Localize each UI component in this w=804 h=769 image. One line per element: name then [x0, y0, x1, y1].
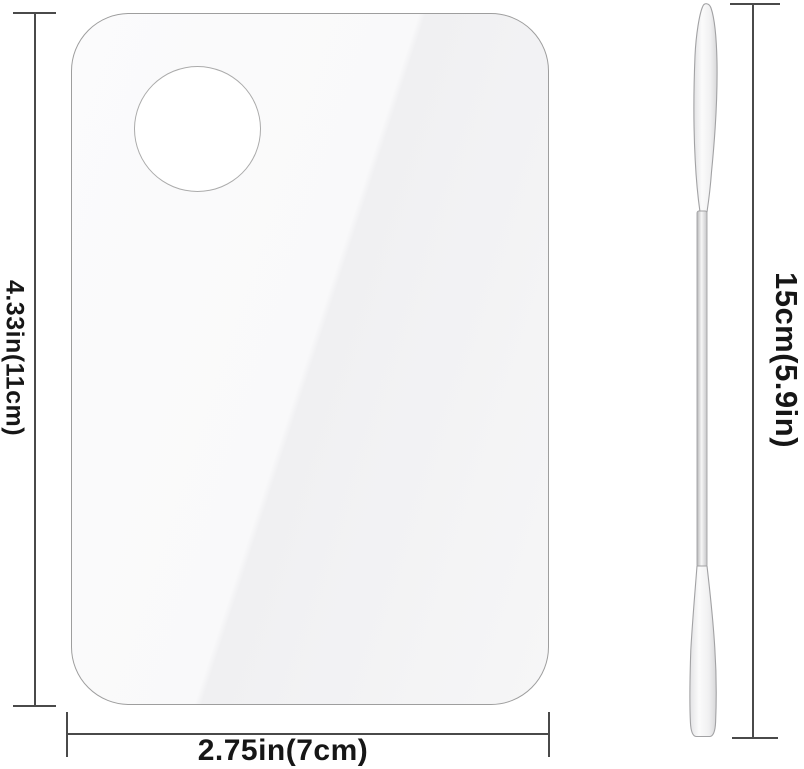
spatula-bottom-blade	[690, 566, 716, 737]
palette-height-label: 4.33in(11cm)	[0, 280, 29, 436]
width-dimension-tick-right	[548, 712, 550, 757]
height-dimension-line	[34, 13, 36, 707]
height-dimension-cap-top	[13, 12, 56, 14]
length-dimension-cap-bottom	[732, 737, 778, 739]
palette-width-label: 2.75in(7cm)	[198, 734, 369, 768]
width-dimension-tick-left	[66, 712, 68, 757]
mixing-spatula-icon	[680, 0, 730, 745]
length-dimension-line	[752, 4, 754, 739]
product-dimension-image: 4.33in(11cm) 2.75in(7cm) 15cm(5.9in)	[0, 0, 804, 769]
makeup-palette	[71, 13, 549, 705]
thumb-hole	[134, 66, 261, 192]
spatula-handle-rod	[697, 211, 707, 567]
spatula-top-blade	[694, 4, 717, 212]
spatula-length-label: 15cm(5.9in)	[768, 272, 804, 448]
length-dimension-cap-top	[730, 3, 780, 5]
height-dimension-cap-bottom	[13, 705, 56, 707]
